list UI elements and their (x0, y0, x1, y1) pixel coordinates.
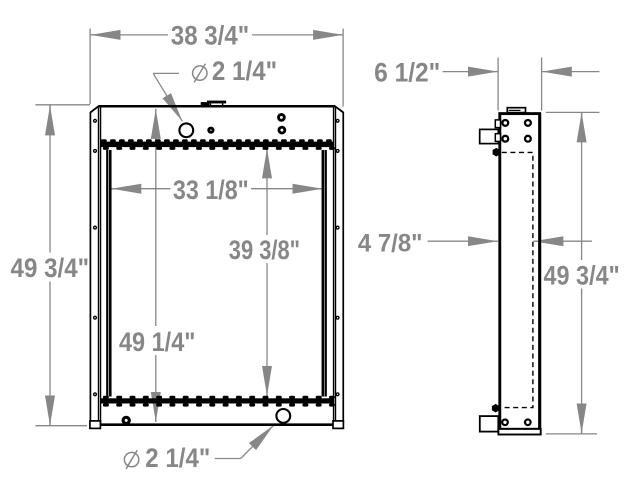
svg-text:4 7/8": 4 7/8" (358, 230, 423, 258)
svg-text:39 3/8": 39 3/8" (229, 235, 300, 265)
svg-text:2 1/4": 2 1/4" (145, 443, 210, 473)
svg-text:49 1/4": 49 1/4" (119, 327, 195, 357)
svg-text:49 3/4": 49 3/4" (544, 261, 620, 291)
svg-text:33 1/8": 33 1/8" (173, 175, 249, 205)
svg-text:38 3/4": 38 3/4" (171, 20, 249, 50)
svg-text:2 1/4": 2 1/4" (212, 56, 277, 86)
svg-text:6 1/2": 6 1/2" (374, 57, 440, 87)
svg-text:49 3/4": 49 3/4" (11, 253, 90, 283)
